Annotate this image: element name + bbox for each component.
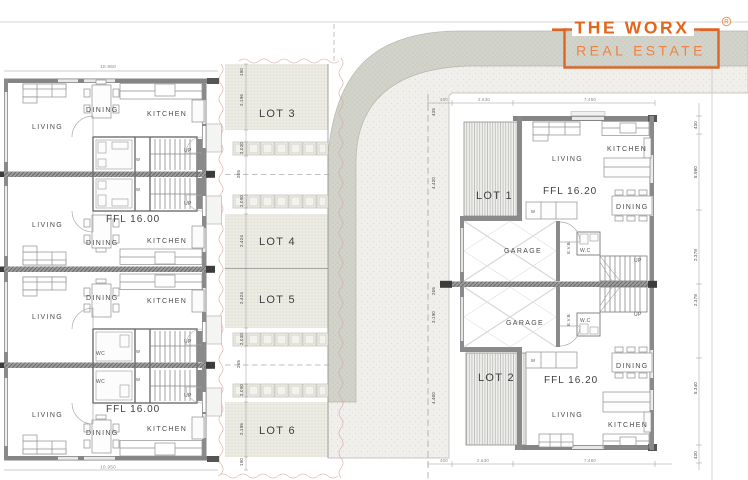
svg-text:REAL ESTATE: REAL ESTATE [576,43,706,59]
svg-text:DINING: DINING [86,430,119,437]
svg-text:400: 400 [440,458,448,463]
svg-text:LOT 3: LOT 3 [259,108,296,120]
svg-text:190: 190 [239,68,244,76]
svg-text:265: 265 [431,287,436,295]
svg-text:2.030: 2.030 [239,142,244,154]
svg-text:KITCHEN: KITCHEN [147,298,187,305]
svg-text:5.980: 5.980 [693,166,698,178]
svg-text:2.424: 2.424 [239,235,244,247]
svg-text:LIVING: LIVING [32,222,63,229]
svg-text:7.460: 7.460 [584,97,596,102]
svg-text:LOT 6: LOT 6 [259,425,296,437]
svg-text:UP: UP [184,339,192,345]
svg-text:W: W [136,349,140,354]
svg-text:KITCHEN: KITCHEN [147,238,187,245]
svg-text:LIVING: LIVING [552,156,583,163]
svg-text:WC: WC [96,379,105,385]
svg-text:KITCHEN: KITCHEN [147,111,187,118]
svg-text:LOT 4: LOT 4 [259,236,296,248]
svg-text:205: 205 [236,170,241,178]
svg-text:E.V.B: E.V.B [566,242,571,254]
svg-text:5.340: 5.340 [693,382,698,394]
svg-text:2.090: 2.090 [239,195,244,207]
svg-text:W: W [531,209,535,214]
svg-text:UP: UP [634,258,642,264]
svg-text:LOT 5: LOT 5 [259,294,296,306]
svg-text:GARAGE: GARAGE [504,248,542,255]
svg-text:W: W [136,377,140,382]
svg-text:THE WORX: THE WORX [574,18,689,38]
svg-text:2.630: 2.630 [478,97,490,102]
svg-text:400: 400 [440,97,448,102]
svg-text:LOT 1: LOT 1 [476,190,513,202]
svg-text:WC: WC [96,351,105,357]
svg-text:LIVING: LIVING [552,412,583,419]
svg-text:435: 435 [431,108,436,116]
svg-text:W.C: W.C [580,248,591,254]
svg-text:2.196: 2.196 [239,423,244,435]
svg-text:3.190: 3.190 [431,311,436,323]
svg-text:4.420: 4.420 [431,177,436,189]
svg-text:430: 430 [693,451,698,459]
svg-text:2.378: 2.378 [693,249,698,261]
svg-text:KITCHEN: KITCHEN [607,146,647,153]
svg-text:DINING: DINING [616,204,649,211]
svg-text:2.196: 2.196 [239,94,244,106]
svg-text:FFL 16.20: FFL 16.20 [544,375,598,386]
svg-text:2.424: 2.424 [239,292,244,304]
svg-text:LIVING: LIVING [32,314,63,321]
svg-text:2.030: 2.030 [239,333,244,345]
svg-text:KITCHEN: KITCHEN [608,422,648,429]
svg-text:DINING: DINING [86,107,119,114]
svg-text:7.460: 7.460 [584,458,596,463]
svg-text:430: 430 [693,121,698,129]
svg-text:4.400: 4.400 [431,392,436,404]
svg-text:GARAGE: GARAGE [506,320,544,327]
svg-text:FFL 16.20: FFL 16.20 [543,186,597,197]
svg-text:LIVING: LIVING [32,412,63,419]
svg-text:DINING: DINING [86,240,119,247]
svg-text:W: W [531,358,535,363]
svg-text:FFL 16.00: FFL 16.00 [106,214,160,225]
svg-text:UP: UP [634,312,642,318]
svg-text:265: 265 [236,360,241,368]
svg-text:W: W [136,187,140,192]
svg-text:W.C: W.C [580,318,591,324]
svg-text:190: 190 [239,458,244,466]
svg-text:DINING: DINING [86,295,119,302]
svg-text:2.378: 2.378 [693,294,698,306]
svg-text:E.V.B: E.V.B [566,314,571,326]
svg-text:LIVING: LIVING [32,124,63,131]
svg-text:10.950: 10.950 [100,465,116,471]
svg-text:LOT 2: LOT 2 [478,372,515,384]
svg-text:10.950: 10.950 [100,64,116,70]
svg-text:DINING: DINING [616,363,649,370]
svg-text:FFL 16.00: FFL 16.00 [106,404,160,415]
svg-text:W: W [136,157,140,162]
svg-text:2.090: 2.090 [239,384,244,396]
svg-text:2.630: 2.630 [477,458,489,463]
svg-text:KITCHEN: KITCHEN [147,426,187,433]
